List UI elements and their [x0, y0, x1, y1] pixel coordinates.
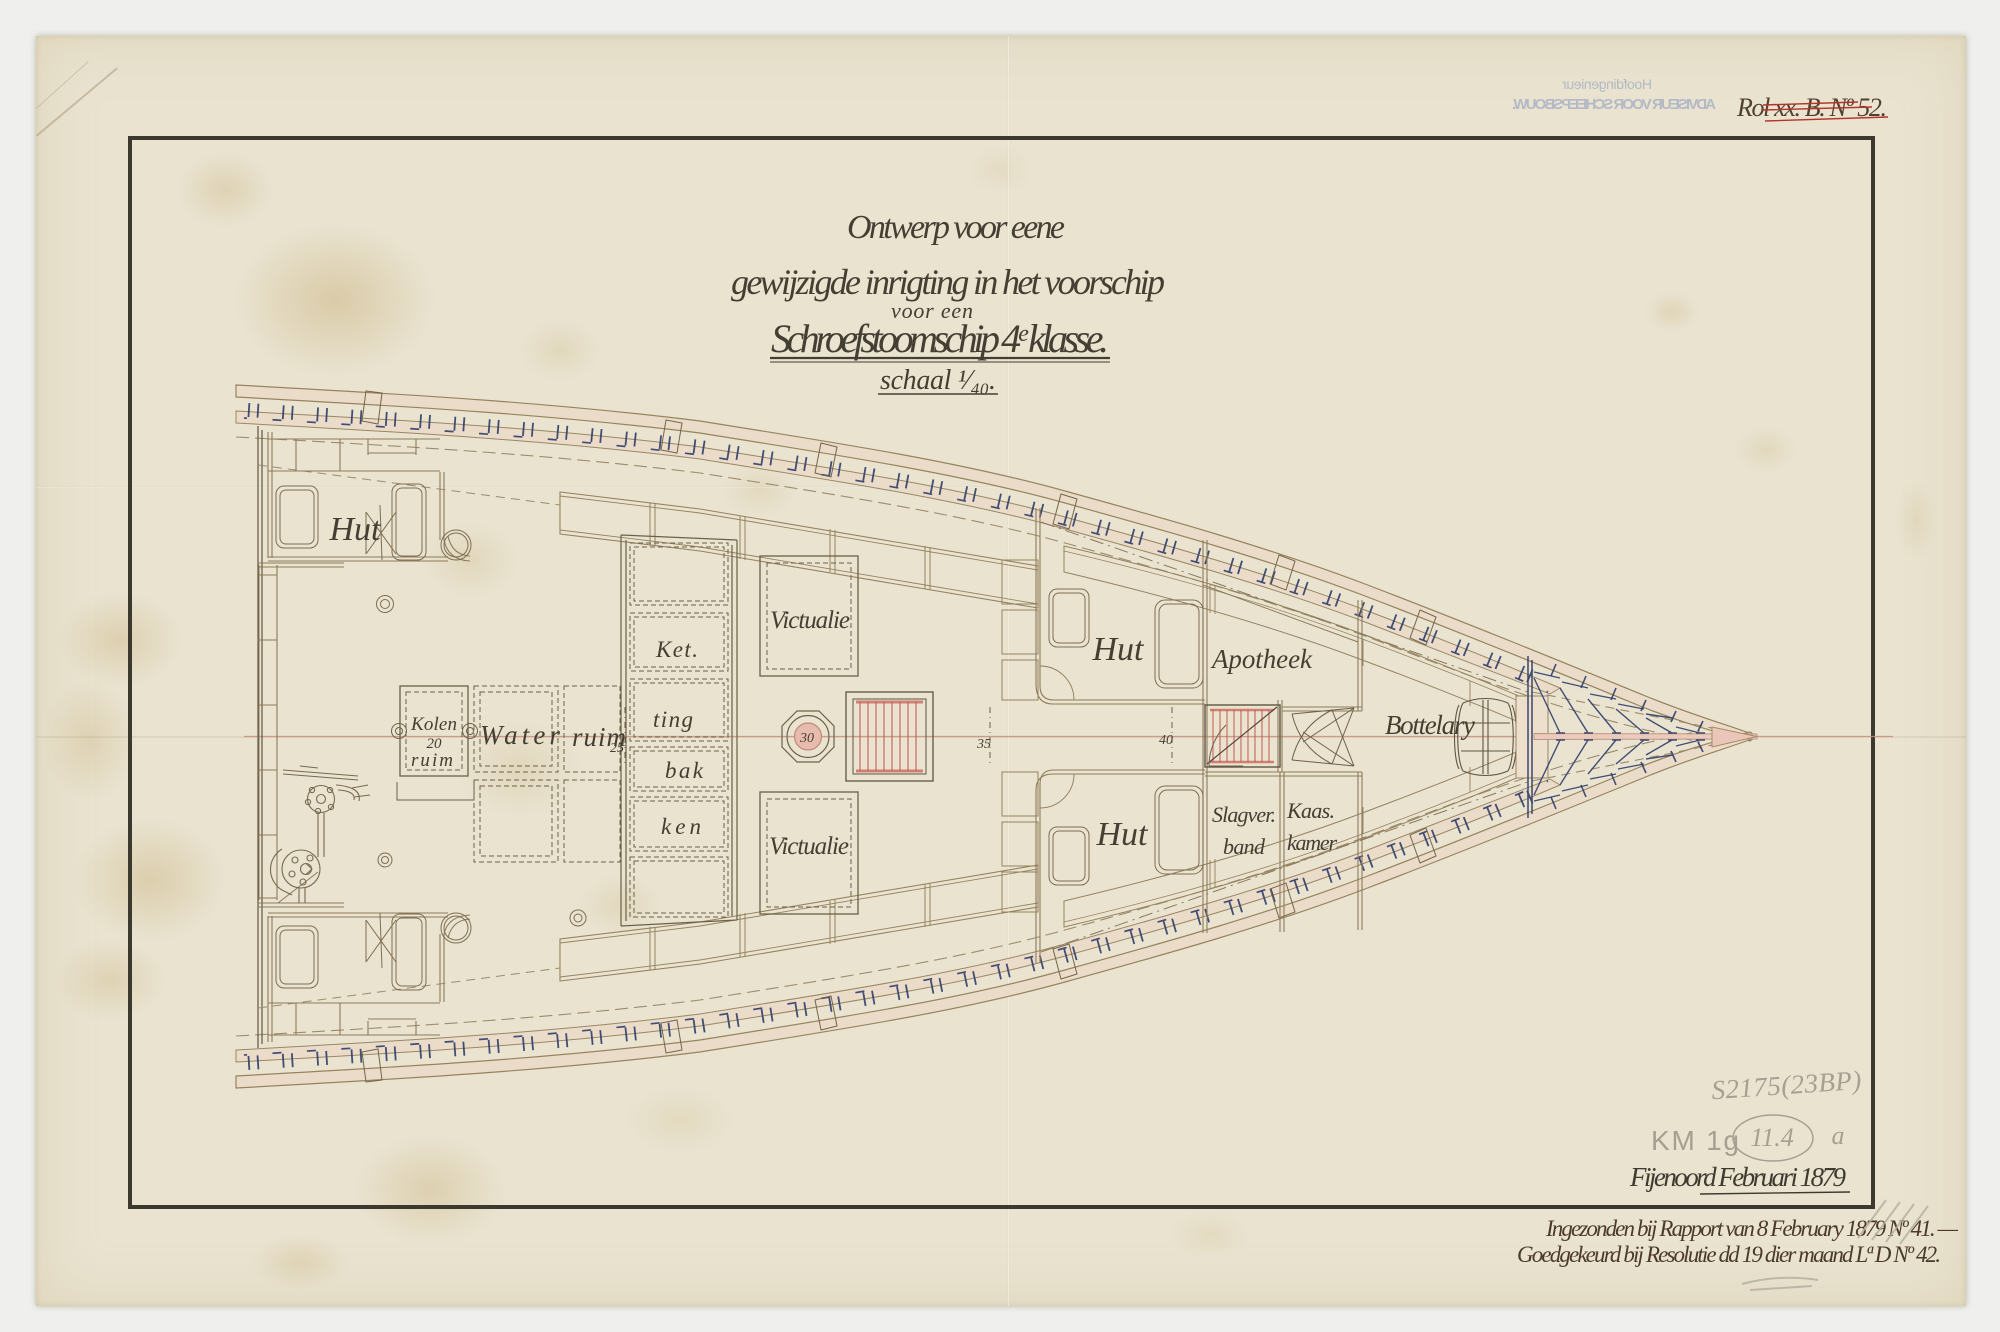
svg-text:ruim: ruim — [411, 750, 453, 771]
svg-text:KM 1g: KM 1g — [1651, 1125, 1739, 1156]
svg-text:Victualie: Victualie — [770, 607, 850, 634]
svg-text:Ontwerp voor eene: Ontwerp voor eene — [847, 209, 1065, 246]
svg-text:band: band — [1223, 834, 1266, 859]
svg-text:Hut: Hut — [1096, 816, 1150, 853]
svg-text:40: 40 — [1159, 733, 1173, 748]
svg-text:gewijzigde inrigting in het vo: gewijzigde inrigting in het voorschip — [731, 262, 1165, 302]
svg-text:S2175(23BP): S2175(23BP) — [1711, 1065, 1863, 1105]
svg-text:30: 30 — [799, 731, 814, 746]
svg-text:Ket.: Ket. — [655, 637, 698, 662]
svg-text:35: 35 — [976, 737, 991, 752]
svg-text:ADVISEUR VOOR SCHEEPSBOUW.: ADVISEUR VOOR SCHEEPSBOUW. — [1512, 96, 1716, 113]
svg-text:Water: Water — [480, 720, 560, 750]
svg-text:kamer: kamer — [1287, 830, 1337, 855]
svg-text:Apotheek: Apotheek — [1210, 644, 1313, 674]
svg-text:Fijenoord Februari 1879: Fijenoord Februari 1879 — [1629, 1162, 1847, 1192]
svg-text:ting: ting — [653, 707, 693, 732]
svg-text:Hoofdingenieur: Hoofdingenieur — [1562, 76, 1652, 92]
svg-text:ken: ken — [661, 814, 701, 839]
svg-text:Hut: Hut — [329, 511, 383, 548]
svg-text:Hut: Hut — [1092, 631, 1146, 668]
svg-text:Kolen: Kolen — [410, 714, 457, 735]
svg-text:Bottelary: Bottelary — [1385, 710, 1475, 740]
svg-text:Victualie: Victualie — [769, 833, 849, 860]
svg-text:Goedgekeurd bij Resolutie dd 1: Goedgekeurd bij Resolutie dd 19 dier maa… — [1517, 1242, 1941, 1267]
svg-text:bak: bak — [665, 758, 704, 783]
svg-text:schaal ¹⁄₄₀.: schaal ¹⁄₄₀. — [880, 365, 996, 396]
svg-text:Slagver.: Slagver. — [1212, 802, 1276, 827]
svg-text:Schroefstoomschip 4ᵉ klasse.: Schroefstoomschip 4ᵉ klasse. — [771, 316, 1109, 361]
svg-text:Kaas.: Kaas. — [1286, 798, 1335, 823]
svg-text:11.4: 11.4 — [1750, 1123, 1794, 1152]
svg-text:25: 25 — [610, 741, 624, 756]
svg-text:a: a — [1832, 1121, 1845, 1150]
